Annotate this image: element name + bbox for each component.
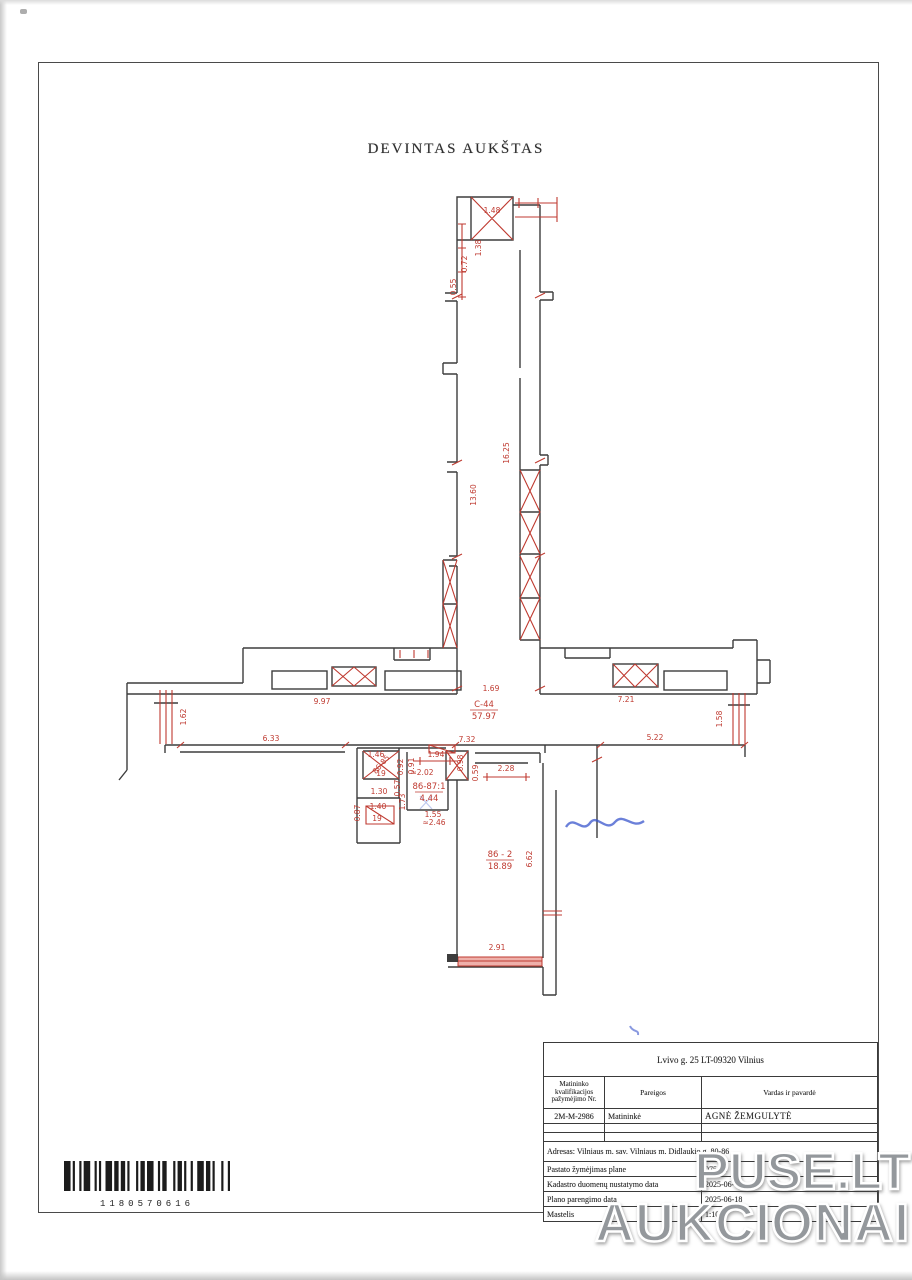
empty-cell	[544, 1124, 604, 1132]
barcode-bar	[84, 1161, 91, 1191]
empty-cell	[701, 1124, 877, 1132]
barcode-bar	[162, 1161, 166, 1191]
empty-row	[544, 1132, 877, 1141]
title-block: Lvivo g. 25 LT-09320 Vilnius Matininko k…	[543, 1042, 878, 1222]
barcode-bar	[178, 1161, 182, 1191]
blue-scribble	[566, 819, 644, 827]
shaft-box	[332, 667, 376, 686]
blue-dot-mark	[630, 1026, 638, 1035]
dimension-label: 1.30	[371, 787, 388, 796]
dimension-label: 7.21	[618, 695, 635, 704]
dimension-label: 0.92	[396, 758, 405, 775]
dimension-label: 0.55	[449, 278, 458, 295]
dimension-label: 2.28	[498, 764, 515, 773]
kv-value: 2025-06-16	[701, 1177, 877, 1191]
kv-value: 1:100	[701, 1207, 877, 1221]
column-header-cert: Matininko kvalifikacijos pažymėjimo Nr.	[544, 1077, 604, 1108]
room-labels: C-4457.9786-87:14.4486 - 218.89	[413, 700, 514, 872]
surveyor-position: Matininkė	[604, 1109, 701, 1123]
column-header-position: Pareigos	[604, 1077, 701, 1108]
blue-ink-marks	[420, 796, 644, 1035]
kv-value: 2025-06-18	[701, 1192, 877, 1206]
room-label: C-44	[474, 700, 494, 710]
dimension-label: 0.59	[471, 764, 480, 781]
title-block-column-headers: Matininko kvalifikacijos pažymėjimo Nr. …	[544, 1076, 877, 1108]
dimension-label: 16.25	[502, 442, 511, 464]
barcode-bar	[136, 1161, 138, 1191]
barcode-bar	[221, 1161, 223, 1191]
barcode-number: 1180570616	[62, 1199, 232, 1209]
empty-cell	[604, 1133, 701, 1141]
kv-label: Mastelis	[544, 1207, 701, 1221]
barcode-bar	[206, 1161, 210, 1191]
kv-row-plan-date: Plano parengimo data 2025-06-18	[544, 1191, 877, 1206]
column-header-name: Vardas ir pavardė	[701, 1077, 877, 1108]
dimension-label: 1.94	[428, 750, 445, 759]
barcode-bar	[140, 1161, 144, 1191]
empty-cell	[604, 1124, 701, 1132]
wall-pier	[447, 954, 458, 962]
barcode-bar	[73, 1161, 75, 1191]
barcode-bar	[127, 1161, 129, 1191]
room-label: 18.89	[488, 862, 512, 872]
dimension-label: 0.98	[456, 754, 465, 771]
dimension-lines-red	[160, 197, 748, 961]
barcode-bar	[79, 1161, 81, 1191]
surveyor-name: AGNĖ ŽEMGULYTĖ	[701, 1109, 877, 1123]
barcode: 1180570616	[62, 1161, 232, 1209]
barcode-bar	[121, 1161, 125, 1191]
kv-label: Kadastro duomenų nustatymo data	[544, 1177, 701, 1191]
barcode-bar	[95, 1161, 97, 1191]
barcode-bar	[173, 1161, 175, 1191]
room-label: 4.44	[420, 794, 439, 804]
niche-rect	[272, 671, 327, 689]
kv-label: Pastato žymėjimas plane	[544, 1162, 701, 1176]
shaft-box	[613, 664, 658, 687]
barcode-bar	[114, 1161, 118, 1191]
barcode-bar	[99, 1161, 101, 1191]
walls-black	[119, 197, 770, 995]
surveyor-cert-no: 2M-M-2986	[544, 1109, 604, 1123]
dimension-label: 1.73	[398, 793, 407, 810]
address-row-text: Adresas: Vilniaus m. sav. Vilniaus m. Di…	[547, 1147, 729, 1156]
room-label: 57.97	[472, 712, 496, 722]
dimension-label: 13.60	[469, 484, 478, 506]
dimension-label: 1.40	[370, 802, 387, 811]
empty-cell	[544, 1133, 604, 1141]
barcode-bar	[197, 1161, 204, 1191]
niche-rect	[664, 671, 727, 690]
barcode-bar	[191, 1161, 193, 1191]
dimension-label: 6.33	[263, 734, 280, 743]
dimension-label: 1.69	[483, 684, 500, 693]
kv-label: Plano parengimo data	[544, 1192, 701, 1206]
niche-rect	[385, 671, 461, 690]
kv-value: 075dln	[701, 1162, 877, 1176]
room-label: 86-87:1	[413, 782, 446, 792]
dimension-label: 19	[372, 814, 382, 823]
kv-row-cadastre-date: Kadastro duomenų nustatymo data 2025-06-…	[544, 1176, 877, 1191]
room-label: 86 - 2	[488, 850, 513, 860]
dimension-label: 5.22	[647, 733, 664, 742]
barcode-bar	[147, 1161, 154, 1191]
dimension-label: 1.48	[484, 206, 501, 215]
dimension-label: 0.87	[353, 804, 362, 821]
dimension-label: 2.91	[489, 943, 506, 952]
dimension-label: 0.72	[460, 255, 469, 272]
barcode-bar	[106, 1161, 113, 1191]
surveyor-row: 2M-M-2986 Matininkė AGNĖ ŽEMGULYTĖ	[544, 1108, 877, 1123]
kv-row-building-marking: Pastato žymėjimas plane 075dln	[544, 1161, 877, 1176]
barcode-bars	[62, 1161, 232, 1193]
dimension-label: 9.97	[314, 697, 331, 706]
barcode-bar	[64, 1161, 71, 1191]
barcode-bar	[228, 1161, 230, 1191]
dimension-label: 7.32	[459, 735, 476, 744]
barcode-bar	[213, 1161, 215, 1191]
address-row: Adresas: Vilniaus m. sav. Vilniaus m. Di…	[544, 1141, 877, 1161]
barcode-bar	[158, 1161, 160, 1191]
dimension-label: ≈2.46	[423, 818, 446, 827]
dimension-label: 1.38	[474, 239, 483, 256]
kv-row-scale: Mastelis 1:100	[544, 1206, 877, 1221]
empty-cell	[701, 1133, 877, 1141]
dimension-label: 1.62	[179, 708, 188, 725]
barcode-bar	[184, 1161, 186, 1191]
dimension-label: 6.62	[525, 850, 534, 867]
dimension-label: 19	[376, 769, 386, 778]
corridor-niches	[272, 664, 727, 690]
title-block-address-header: Lvivo g. 25 LT-09320 Vilnius	[544, 1043, 877, 1076]
dimension-label: ≈2.02	[411, 768, 434, 777]
scanned-floorplan-document: { "page": { "title": "DEVINTAS AUKŠTAS" …	[0, 0, 912, 1280]
address-header-text: Lvivo g. 25 LT-09320 Vilnius	[657, 1055, 764, 1065]
dimension-label: 1.58	[715, 710, 724, 727]
empty-row	[544, 1123, 877, 1132]
